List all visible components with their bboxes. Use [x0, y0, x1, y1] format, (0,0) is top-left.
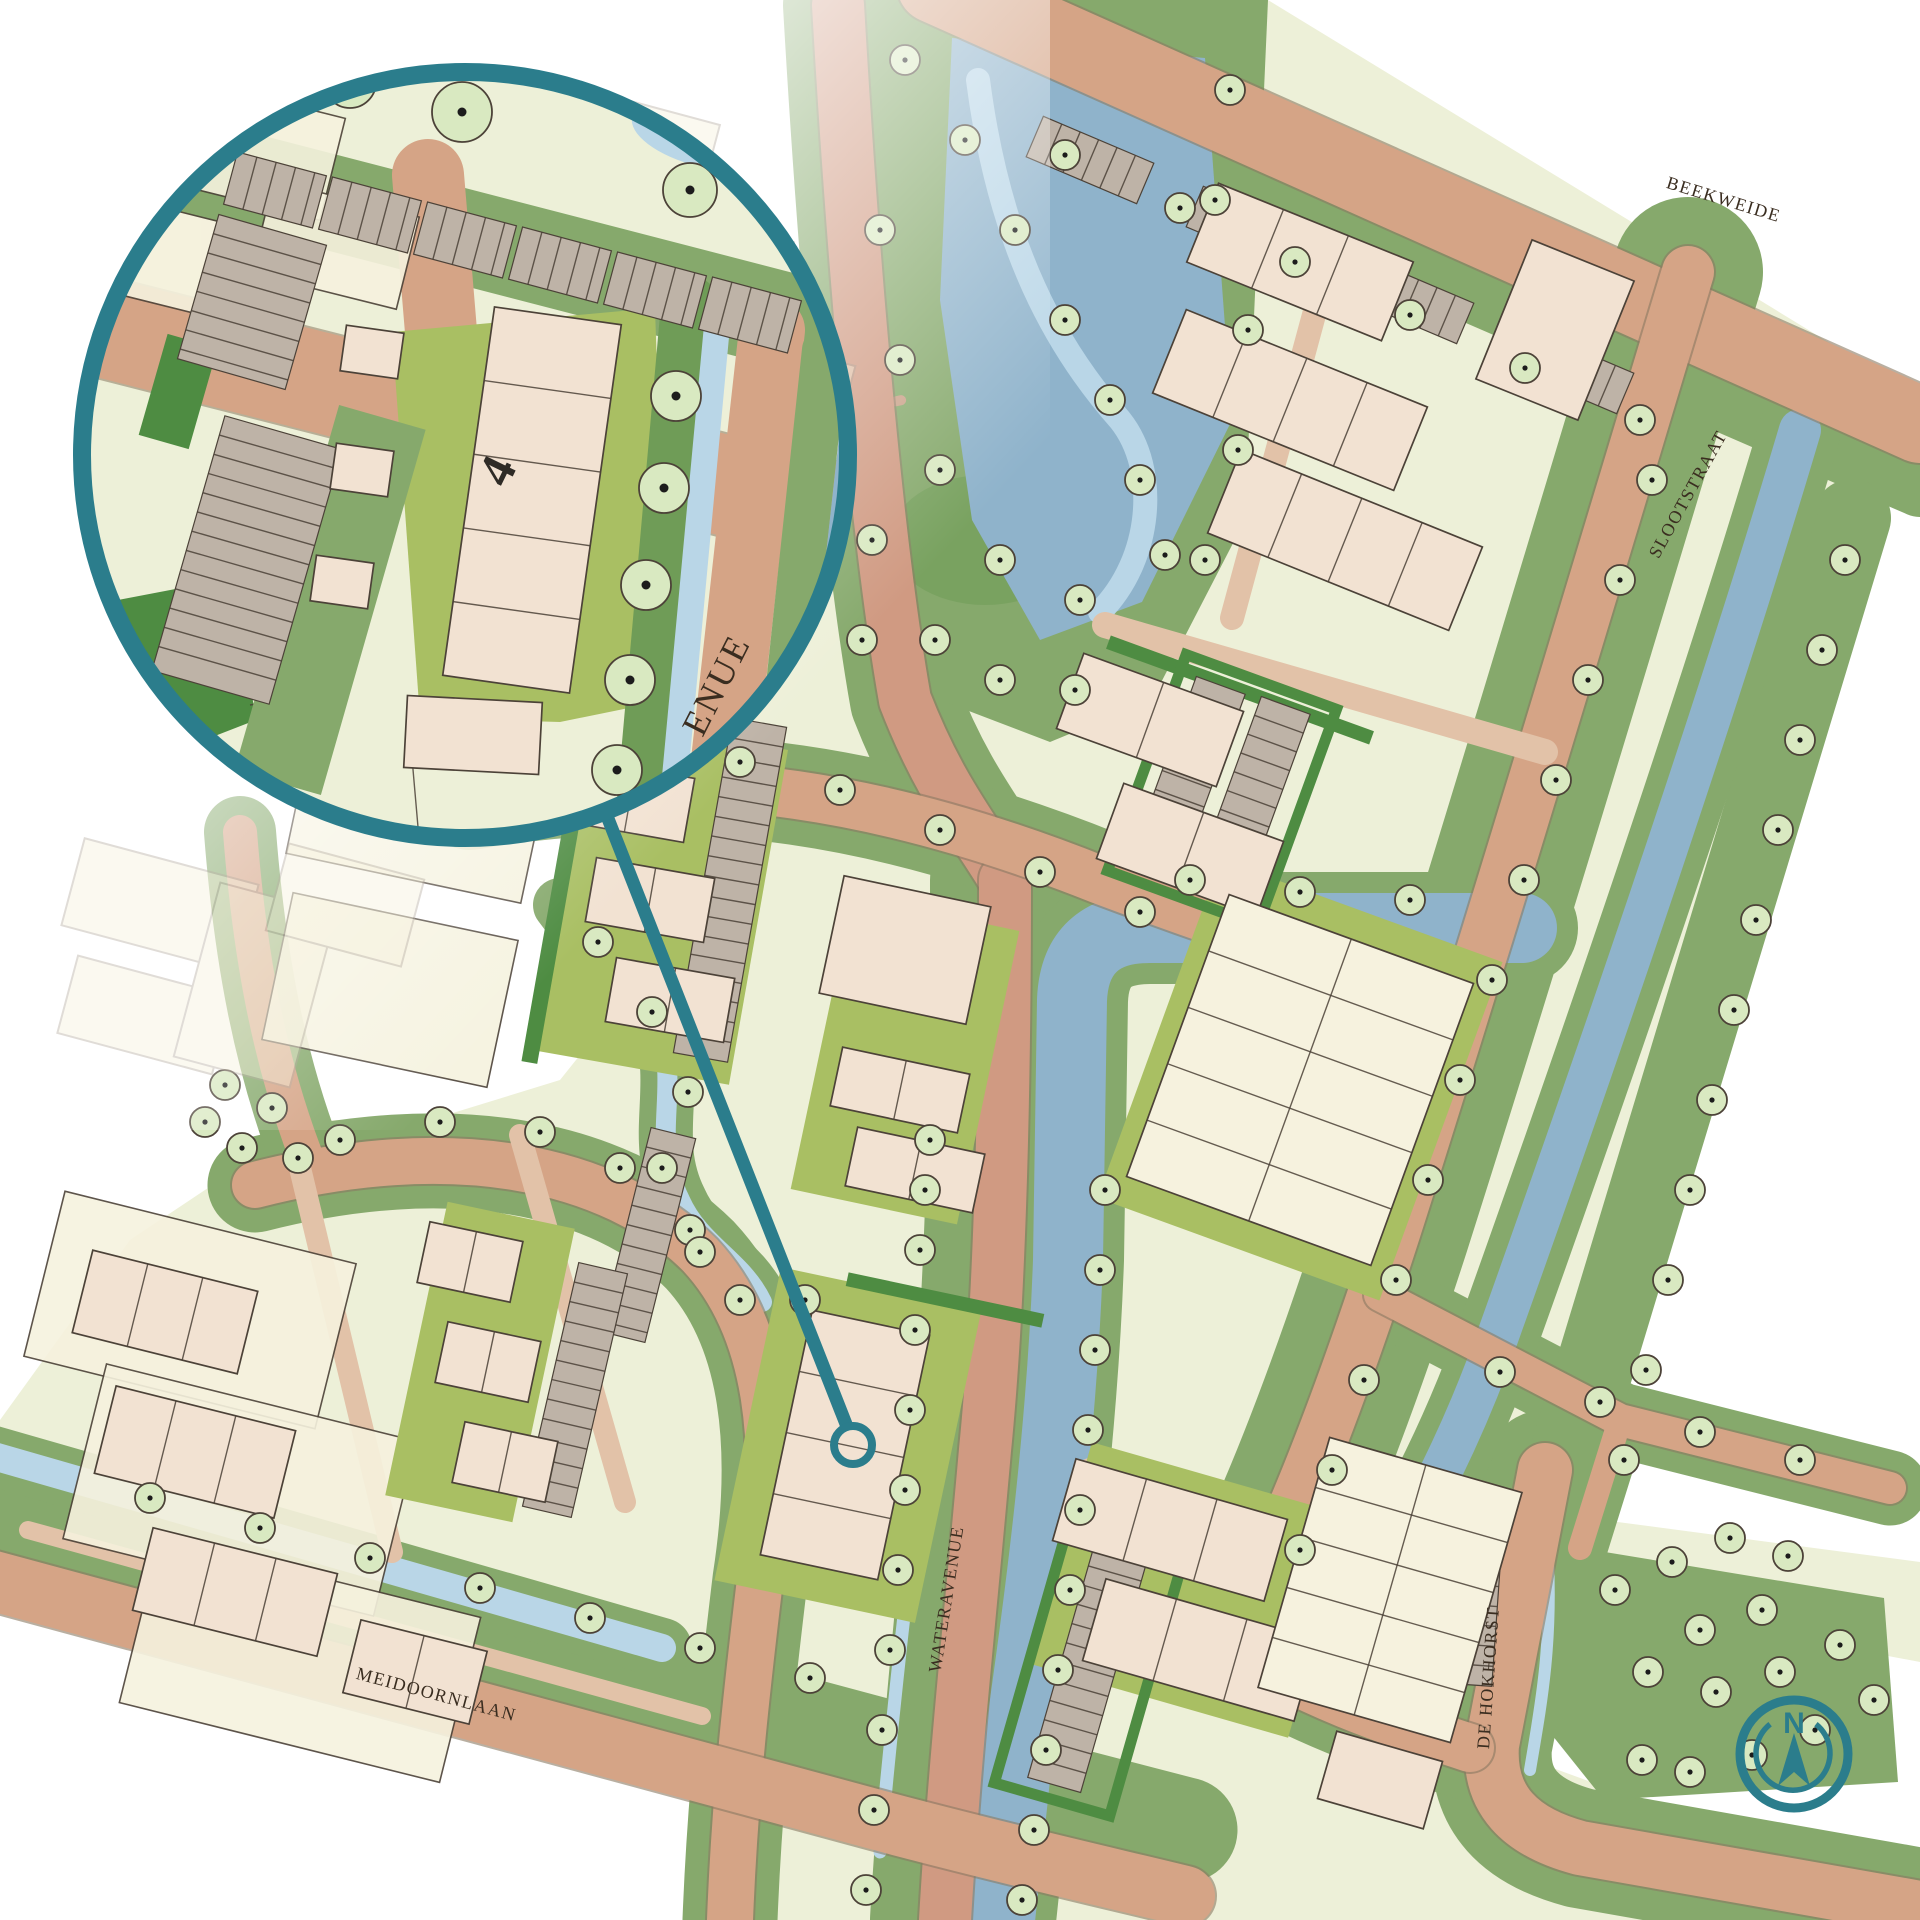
tree-dot — [1227, 87, 1232, 92]
tree-dot — [1819, 647, 1824, 652]
tree-dot — [1713, 1689, 1718, 1694]
tree-dot — [1393, 1277, 1398, 1282]
tree-dot — [642, 581, 651, 590]
tree-dot — [659, 1165, 664, 1170]
tree-dot — [1645, 1669, 1650, 1674]
tree-dot — [1297, 1547, 1302, 1552]
tree-dot — [617, 1165, 622, 1170]
tree-dot — [1245, 327, 1250, 332]
tree-dot — [1407, 897, 1412, 902]
tree-dot — [697, 1645, 702, 1650]
tree-dot — [879, 1727, 884, 1732]
tree-dot — [887, 1647, 892, 1652]
tree-dot — [257, 1525, 262, 1530]
tree-dot — [1837, 1642, 1842, 1647]
tree-dot — [1425, 1177, 1430, 1182]
tree-dot — [1777, 1669, 1782, 1674]
tree-dot — [458, 108, 467, 117]
tree-dot — [672, 392, 681, 401]
site-plan-map: BEEKWEIDE SLOOTSTRAAT WATERAVENUE MEIDOO… — [0, 0, 1920, 1920]
tree-dot — [1072, 687, 1077, 692]
tree-dot — [697, 1249, 702, 1254]
tree-dot — [1137, 477, 1142, 482]
tree-dot — [1292, 259, 1297, 264]
tree-dot — [1687, 1187, 1692, 1192]
tree-dot — [337, 1137, 342, 1142]
tree-dot — [1871, 1697, 1876, 1702]
tree-dot — [367, 1555, 372, 1560]
tree-dot — [1407, 312, 1412, 317]
tree-dot — [1797, 737, 1802, 742]
tree-dot — [1621, 1457, 1626, 1462]
tree-dot — [1102, 1187, 1107, 1192]
tree-dot — [1107, 397, 1112, 402]
tree-dot — [1639, 1757, 1644, 1762]
tree-dot — [1797, 1457, 1802, 1462]
tree-dot — [807, 1675, 812, 1680]
tree-dot — [477, 1585, 482, 1590]
tree-dot — [1669, 1559, 1674, 1564]
tree-dot — [1019, 1897, 1024, 1902]
tree-dot — [871, 1807, 876, 1812]
building-row — [340, 325, 404, 379]
tree-dot — [295, 1155, 300, 1160]
tree-dot — [1709, 1097, 1714, 1102]
tree-dot — [895, 1567, 900, 1572]
tree-dot — [1031, 1827, 1036, 1832]
tree-dot — [1361, 1377, 1366, 1382]
tree-dot — [1235, 447, 1240, 452]
tree-dot — [1043, 1747, 1048, 1752]
tree-dot — [1775, 827, 1780, 832]
tree-dot — [1637, 417, 1642, 422]
tree-dot — [1522, 365, 1527, 370]
tree-dot — [1697, 1429, 1702, 1434]
tree-dot — [902, 1487, 907, 1492]
tree-dot — [927, 1137, 932, 1142]
tree-dot — [1687, 1769, 1692, 1774]
tree-dot — [1187, 877, 1192, 882]
building-rect — [340, 325, 404, 379]
tree-dot — [1097, 1267, 1102, 1272]
tree-dot — [1521, 877, 1526, 882]
tree-dot — [1085, 1427, 1090, 1432]
tree-dot — [1077, 597, 1082, 602]
tree-dot — [660, 484, 669, 493]
tree-dot — [917, 1247, 922, 1252]
tree-dot — [1785, 1553, 1790, 1558]
tree-dot — [626, 676, 635, 685]
tree-dot — [1062, 317, 1067, 322]
building-rect — [330, 443, 394, 497]
tree-dot — [1202, 557, 1207, 562]
tree-dot — [1553, 777, 1558, 782]
building-rect — [310, 555, 374, 609]
tree-dot — [907, 1407, 912, 1412]
tree-dot — [1753, 917, 1758, 922]
tree-dot — [1649, 477, 1654, 482]
tree-dot — [1212, 197, 1217, 202]
site-plan-page: BEEKWEIDE SLOOTSTRAAT WATERAVENUE MEIDOO… — [0, 0, 1920, 1920]
tree-dot — [1612, 1587, 1617, 1592]
tree-dot — [1617, 577, 1622, 582]
tree-dot — [1077, 1507, 1082, 1512]
tree-dot — [1055, 1667, 1060, 1672]
tree-dot — [1329, 1467, 1334, 1472]
tree-dot — [863, 1887, 868, 1892]
tree-dot — [1597, 1399, 1602, 1404]
tree-dot — [1643, 1367, 1648, 1372]
tree-dot — [537, 1129, 542, 1134]
tree-dot — [587, 1615, 592, 1620]
tree-dot — [1067, 1587, 1072, 1592]
building-rect — [404, 696, 543, 775]
tree-dot — [922, 1187, 927, 1192]
tree-dot — [1497, 1369, 1502, 1374]
building-row — [310, 555, 374, 609]
tree-dot — [1092, 1347, 1097, 1352]
tree-dot — [1697, 1627, 1702, 1632]
tree-dot — [1457, 1077, 1462, 1082]
tree-dot — [1759, 1607, 1764, 1612]
building-row — [330, 443, 394, 497]
tree-dot — [1297, 889, 1302, 894]
tree-dot — [1842, 557, 1847, 562]
tree-dot — [239, 1145, 244, 1150]
tree-dot — [1489, 977, 1494, 982]
tree-dot — [912, 1327, 917, 1332]
tree-dot — [147, 1495, 152, 1500]
tree-dot — [1062, 152, 1067, 157]
tree-dot — [1137, 909, 1142, 914]
tree-dot — [686, 186, 695, 195]
tree-dot — [1731, 1007, 1736, 1012]
building-row — [404, 696, 543, 775]
compass-rose: N — [1740, 1700, 1848, 1808]
tree-dot — [1585, 677, 1590, 682]
tree-dot — [1162, 552, 1167, 557]
tree-dot — [613, 766, 622, 775]
tree-dot — [1665, 1277, 1670, 1282]
tree-dot — [1727, 1535, 1732, 1540]
tree-dot — [737, 1297, 742, 1302]
tree-dot — [1177, 205, 1182, 210]
tree-dot — [687, 1227, 692, 1232]
